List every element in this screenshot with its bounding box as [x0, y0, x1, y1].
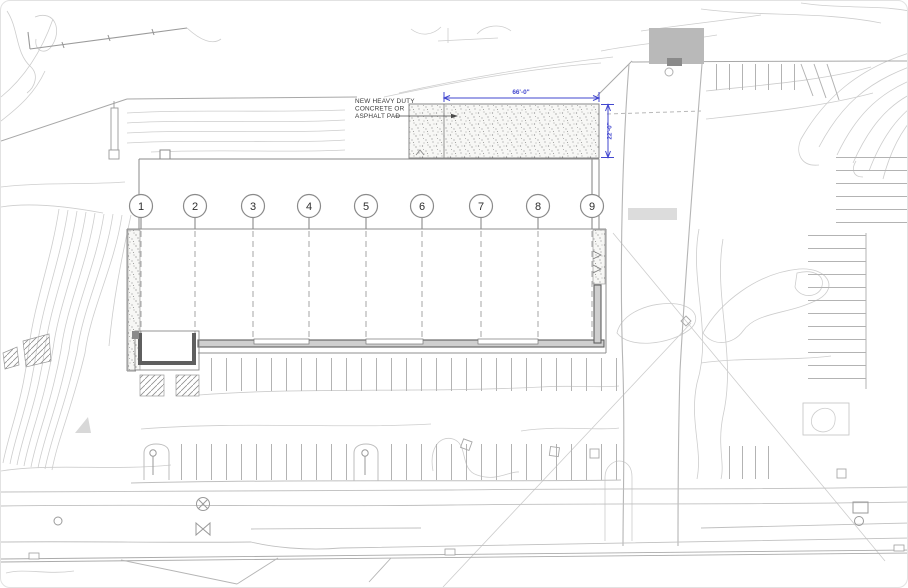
utility-box-icon [853, 502, 868, 526]
grid-bubble-8: 8 [527, 195, 550, 218]
light-pole-icon [362, 450, 368, 475]
grid-bubble-5: 5 [355, 195, 378, 218]
grid-bubbles: 1 2 3 4 5 6 7 8 [130, 158, 604, 229]
pad-width-dimension-text: 66'-0" [512, 89, 529, 96]
utility-pole-icon [109, 101, 119, 159]
storefront-segment [254, 339, 309, 344]
grid-bubble-1: 1 [130, 195, 153, 218]
entry-stoop [176, 375, 199, 396]
east-wall-return [594, 285, 601, 343]
grid-bubble-label: 4 [306, 201, 312, 213]
grid-bubble-label: 1 [138, 201, 144, 213]
pad-depth-dimension-text: 22'-0" [607, 122, 614, 139]
grid-bubble-2: 2 [184, 195, 207, 218]
sidewalk-band-east [593, 230, 605, 284]
grid-bubble-label: 7 [478, 201, 484, 213]
grid-bubble-6: 6 [411, 195, 434, 218]
parking-right-side [713, 64, 908, 479]
grid-bubble-4: 4 [298, 195, 321, 218]
storefront-segment [366, 339, 423, 344]
building-south-wall [198, 285, 604, 347]
column-grid-dashed-lines [141, 231, 592, 339]
small-manhole-icon [54, 517, 62, 525]
grid-bubble-label: 2 [192, 201, 198, 213]
site-plan-canvas: 1 2 3 4 5 6 7 8 [1, 1, 908, 588]
grid-bubble-label: 9 [589, 201, 595, 213]
grid-bubble-label: 3 [250, 201, 256, 213]
road-edges [621, 64, 702, 546]
entry-vestibule [132, 331, 199, 396]
grid-bubble-3: 3 [242, 195, 265, 218]
site-light-icon [665, 68, 673, 76]
light-pole-icon [150, 450, 156, 475]
bottom-road-lines [1, 487, 908, 584]
grid-bubble-stems [141, 158, 592, 229]
grid-bubble-7: 7 [470, 195, 493, 218]
pad-label-line1: NEW HEAVY DUTY [355, 98, 415, 105]
fence-line [28, 28, 187, 49]
grid-bubble-9: 9 [581, 195, 604, 218]
guardrail-marks [29, 545, 904, 559]
dumpster-gate [667, 58, 682, 66]
grid-bubble-label: 8 [535, 201, 541, 213]
concrete-pad [409, 104, 599, 158]
grid-bubble-label: 6 [419, 201, 425, 213]
pad-label-line2: CONCRETE OR [355, 106, 405, 113]
entry-stoop [140, 375, 164, 396]
grid-bubble-label: 5 [363, 201, 369, 213]
crosswalk-pad [628, 208, 677, 220]
parking-island [144, 444, 169, 480]
parking-row-2 [131, 444, 621, 483]
storefront-segment [478, 339, 538, 344]
parking-row-1 [201, 358, 619, 391]
manhole-icon [197, 498, 210, 511]
valve-icon [196, 523, 210, 535]
site-plan-viewport: 1 2 3 4 5 6 7 8 [0, 0, 908, 588]
pad-label-line3: ASPHALT PAD [355, 113, 400, 120]
